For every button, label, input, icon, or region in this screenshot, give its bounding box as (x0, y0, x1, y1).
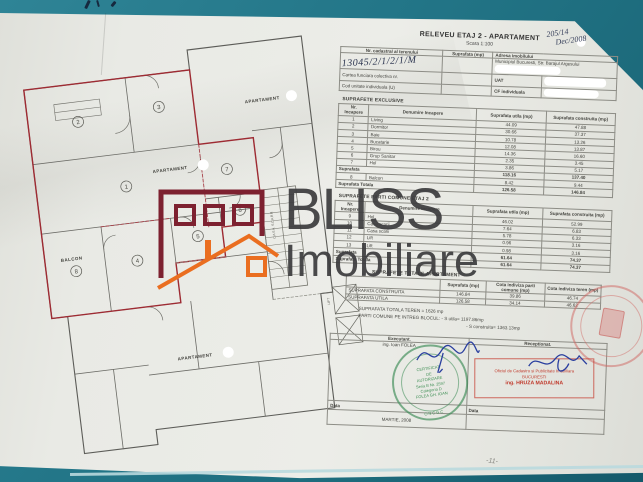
uat-redaction (544, 77, 606, 88)
svg-text:4: 4 (136, 259, 141, 265)
staircase (260, 186, 308, 290)
staircase-label: CASA SCARII (269, 211, 276, 239)
cf-label: CF individuala (491, 86, 541, 98)
svg-text:3: 3 (157, 105, 162, 111)
handwritten-cadastral-number: 13045/2/1/2/1/M (341, 55, 416, 71)
total-utila: 61.64 (471, 260, 540, 270)
cf-value-cell (541, 87, 616, 100)
gray-dashed-line (176, 246, 321, 311)
identification-table: Nr. cadastral al terenului Suprafata (mp… (339, 46, 618, 101)
room-number-badge: 4 (131, 255, 143, 267)
total-utila: 126.58 (474, 185, 543, 195)
row-suprafata: 126.58 (440, 297, 486, 305)
red-dashed-lines (92, 144, 209, 241)
room-number-badge: 1 (120, 180, 132, 192)
outer-walls (21, 36, 348, 455)
svg-text:2: 2 (76, 120, 81, 126)
floor-plan: CASA SCARII LIFT (12, 10, 368, 466)
apartment-boundary-red (24, 63, 272, 318)
room-number-badge: 8 (70, 265, 82, 277)
stamp-name: ing. HRUZA MADALINA (476, 381, 592, 387)
executant-signature (412, 338, 483, 375)
photo-of-cadastral-document: CASA SCARII LIFT (0, 0, 643, 482)
suprafata-cell (442, 57, 492, 75)
room-number-badge: 7 (221, 163, 233, 175)
total-construita: 146.84 (543, 187, 612, 197)
signature-block: Executant. Receptionat. ing. Ioan FOLEA … (326, 333, 607, 436)
address-redaction (495, 64, 561, 74)
total-construita: 74.37 (541, 262, 610, 272)
svg-text:1: 1 (124, 184, 129, 190)
apartament-label-right: APARTAMENT (245, 95, 280, 104)
apartament-label-bottom: APARTAMENT (177, 352, 212, 361)
balcon-label: BALCON (61, 255, 83, 263)
receptionat-signature (524, 348, 591, 378)
exclusive-areas-table: Nr. Incapere Denumire Incapere Suprafata… (335, 103, 616, 198)
document-data-panel: RELEVEU ETAJ 2 - APARTAMENT Scara 1:100 … (326, 28, 618, 435)
empty-cell (442, 84, 492, 96)
th-nr: Nr. Incapere (335, 200, 366, 213)
common-areas-table: Nr. Incapere Denumire Incapere Suprafata… (332, 199, 612, 272)
svg-text:7: 7 (225, 167, 230, 173)
executant-name: ing. Ioan FOLEA (382, 342, 415, 348)
room-number-badge: 5 (192, 230, 204, 242)
room-number-badges: 1 2 3 4 5 6 7 8 (51, 92, 251, 277)
totals-notes: SUPRAFATA TOTALA TEREN = 1626 mp PARTI C… (358, 306, 609, 336)
svg-text:8: 8 (74, 269, 79, 275)
svg-text:5: 5 (196, 234, 201, 240)
handwritten-page-number: -11- (486, 457, 499, 465)
room-number-badge: 3 (153, 101, 165, 113)
svg-text:6: 6 (238, 208, 243, 214)
cf-redaction (544, 88, 599, 98)
furniture-table (54, 99, 102, 120)
apartament-label-center: APARTAMENT (152, 165, 187, 174)
row-cota-comune: 34.14 (486, 299, 545, 308)
